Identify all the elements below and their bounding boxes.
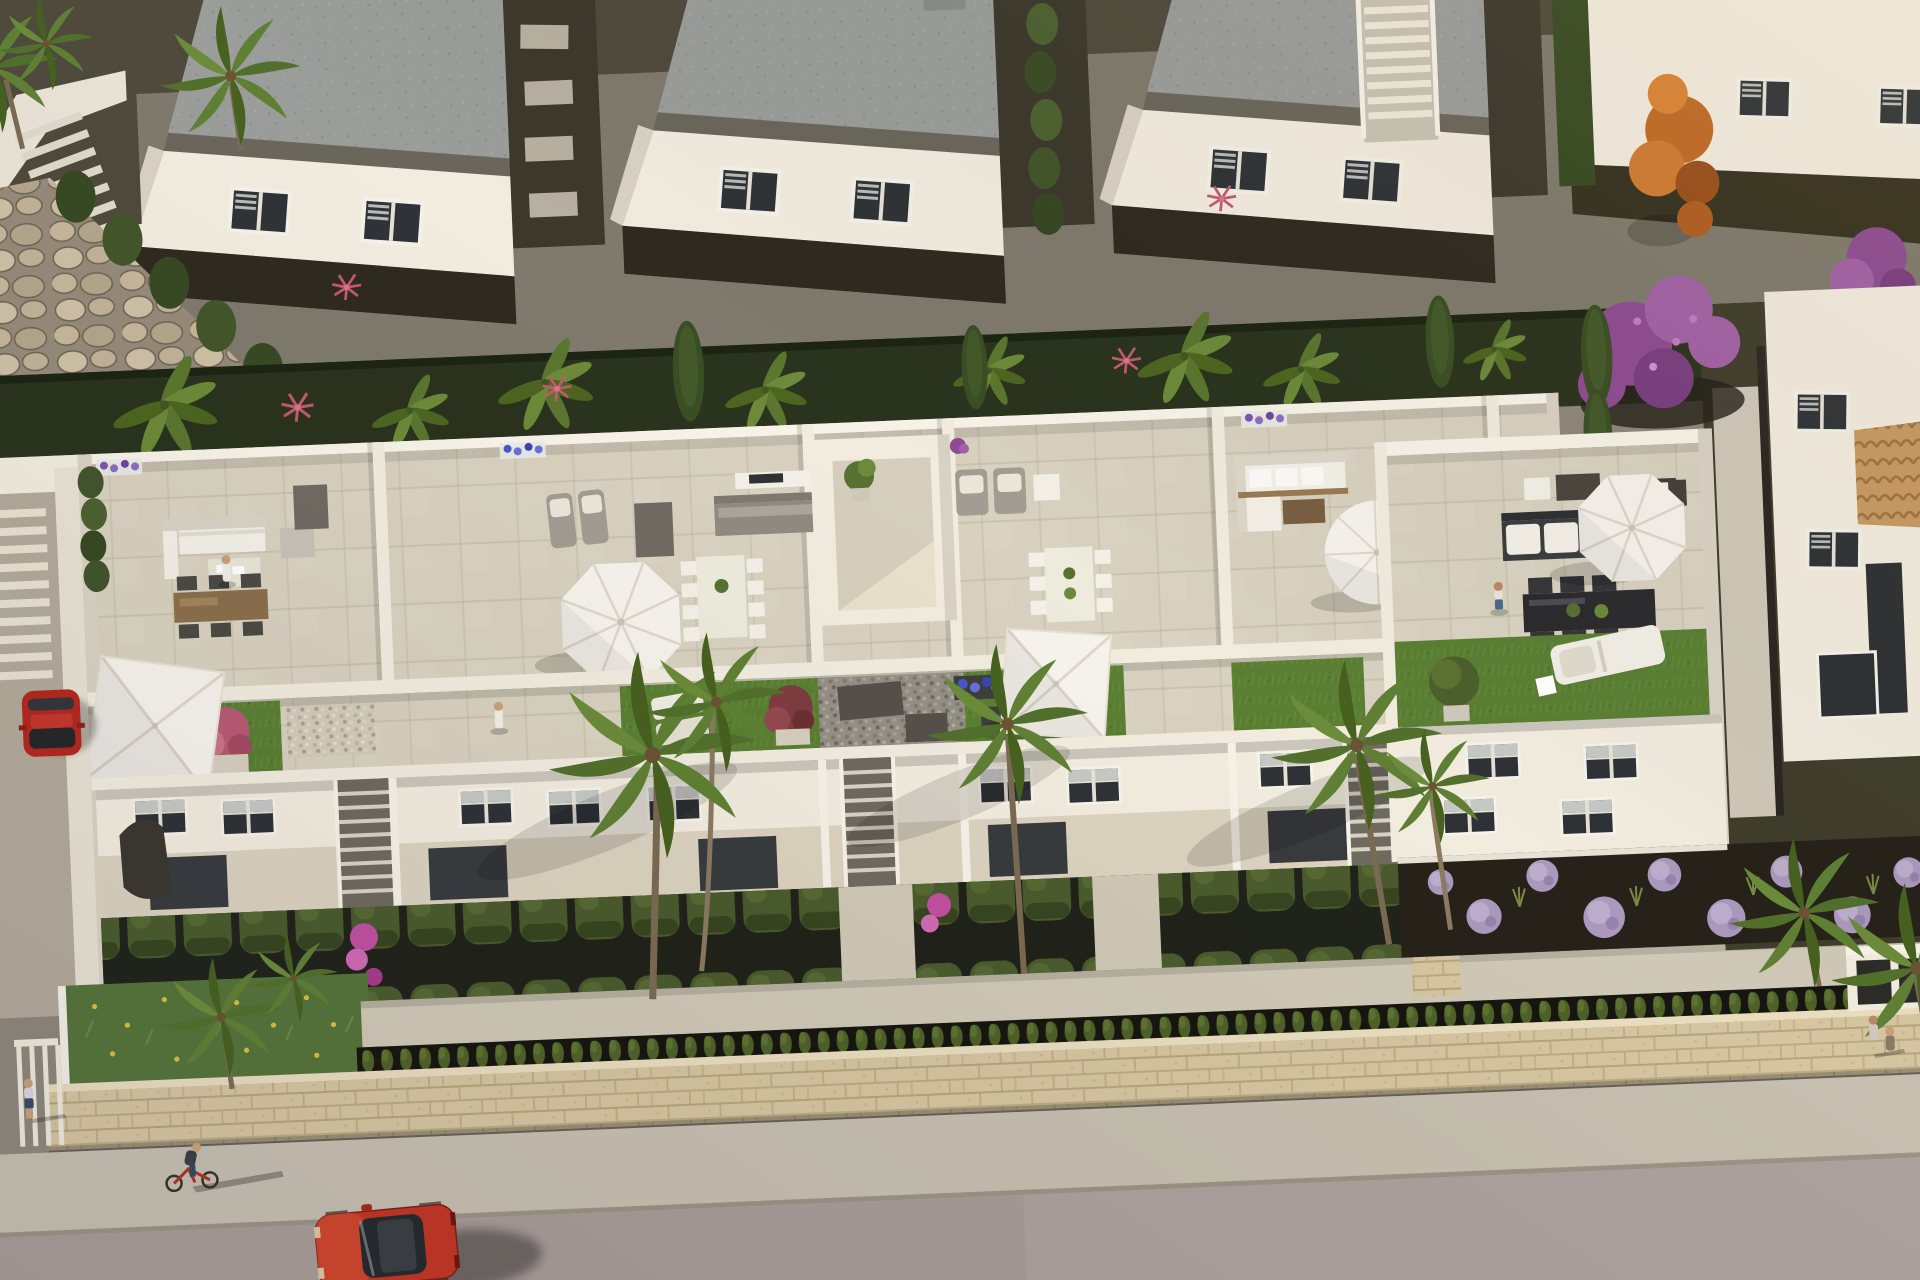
aerial-render — [0, 0, 1920, 1280]
light-overlay — [0, 0, 1920, 1280]
scene-canvas — [0, 0, 1920, 1280]
scene — [0, 0, 1920, 1280]
